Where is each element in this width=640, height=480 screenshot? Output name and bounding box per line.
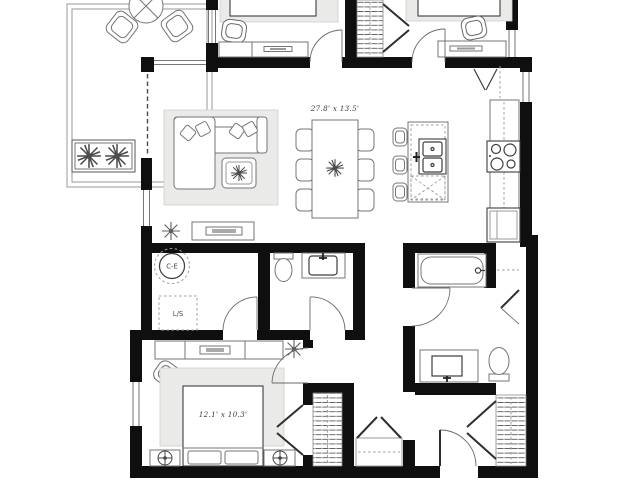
- pantry-bifold-door: [474, 66, 500, 98]
- wall: [342, 393, 354, 466]
- dresser: [155, 341, 185, 359]
- nightstand: [264, 450, 295, 466]
- dining-chair: [356, 129, 374, 151]
- coffee-table: [222, 158, 256, 188]
- bottom-wall: [130, 466, 440, 478]
- refrigerator: [487, 208, 520, 242]
- water-heater-symbol: C-E: [155, 249, 190, 284]
- bifold-door-leaf: [357, 417, 401, 438]
- wall: [303, 383, 313, 405]
- wall: [218, 57, 310, 68]
- plant-icon: [105, 144, 129, 168]
- door-arc: [310, 297, 345, 330]
- wall: [342, 57, 383, 68]
- wall: [345, 0, 357, 57]
- planter-box: [72, 140, 135, 172]
- bed: [230, 0, 316, 16]
- bathroom-1: [274, 253, 345, 330]
- dining-chair: [296, 189, 314, 211]
- closet-door-leaf: [383, 4, 409, 52]
- toilet: [489, 348, 509, 382]
- door-arc: [310, 30, 342, 62]
- floor-plan-svg: 27.8' x 13.5': [0, 0, 640, 480]
- floor-plan-image: 27.8' x 13.5': [0, 0, 640, 480]
- wall: [141, 226, 152, 330]
- lamp-icon: [158, 451, 172, 465]
- balcony-chair: [159, 8, 195, 44]
- door-arc: [501, 308, 519, 324]
- pillow: [225, 451, 258, 464]
- wall: [526, 235, 538, 478]
- dining-chair: [296, 129, 314, 151]
- dining-area: 27.8' x 13.5': [296, 104, 374, 218]
- kitchen-island: [408, 122, 448, 202]
- nightstand: [150, 450, 180, 466]
- wall: [206, 43, 218, 72]
- tv-dresser: [185, 341, 245, 359]
- wall: [130, 330, 223, 340]
- entry-closet: [467, 395, 526, 466]
- entry: [440, 395, 526, 466]
- toilet: [274, 253, 293, 282]
- closet-bedrooms: [357, 0, 409, 57]
- dim-label-living-dining: 27.8' x 13.5': [310, 104, 359, 113]
- wall: [258, 253, 270, 330]
- wall: [141, 158, 152, 190]
- bar-stool: [393, 128, 407, 146]
- master-bedroom: 12.1' x 10.3': [150, 340, 308, 466]
- door-arc: [412, 288, 450, 326]
- dresser: [245, 341, 283, 359]
- bottom-wall: [478, 466, 538, 478]
- ceiling-fan-icon: [162, 222, 180, 240]
- door-arc: [223, 297, 257, 330]
- window: [130, 382, 142, 426]
- wall: [130, 426, 142, 478]
- bar-stool: [393, 156, 407, 174]
- window: [509, 30, 515, 57]
- closet-hanging-rod: [496, 395, 526, 466]
- wall: [303, 340, 313, 348]
- cooktop: [487, 141, 520, 172]
- wall: [403, 243, 415, 288]
- lamp-icon: [273, 451, 287, 465]
- chair: [221, 18, 248, 43]
- bedroom-2: [219, 0, 342, 62]
- wall: [415, 383, 496, 395]
- vanity-sink: [302, 253, 345, 278]
- dresser: [219, 42, 252, 57]
- window: [520, 72, 532, 102]
- wall: [445, 57, 506, 68]
- utility-room: C-E L/S: [155, 249, 258, 331]
- hall-pass-door: [497, 270, 519, 324]
- wall: [383, 57, 412, 68]
- living-room: [162, 110, 278, 240]
- bedroom-1: [406, 0, 512, 62]
- bed: 12.1' x 10.3': [183, 386, 263, 466]
- hall-closet: [356, 417, 402, 466]
- desk-item: [457, 48, 475, 50]
- closet-door-leaf: [467, 401, 496, 459]
- door-leaf: [501, 290, 519, 308]
- dim-label-master-bedroom: 12.1' x 10.3': [199, 410, 247, 419]
- wall: [345, 330, 353, 340]
- plant-icon: [77, 144, 101, 168]
- wall: [303, 455, 313, 466]
- window: [141, 190, 152, 226]
- desk-item: [270, 48, 286, 50]
- vanity-sink: [420, 350, 478, 382]
- bar-stool: [393, 183, 407, 201]
- wall: [141, 57, 154, 72]
- plant-icon: [326, 159, 344, 177]
- tv-console: [192, 222, 254, 240]
- wall: [257, 330, 310, 340]
- wall: [206, 0, 218, 10]
- bed: [418, 0, 500, 16]
- washer-dryer-label: L/S: [173, 310, 183, 318]
- wall: [141, 243, 353, 253]
- pillow: [188, 451, 221, 464]
- dining-chair: [356, 189, 374, 211]
- wall: [403, 326, 415, 392]
- bathtub: [418, 254, 486, 287]
- plant-icon: [231, 165, 247, 181]
- wall: [313, 383, 354, 393]
- washer-dryer-symbol: L/S: [159, 296, 197, 330]
- window: [154, 57, 206, 68]
- wall: [415, 243, 484, 253]
- dining-chair: [356, 159, 374, 181]
- dining-chair: [296, 159, 314, 181]
- wall: [353, 243, 365, 340]
- water-heater-label: C-E: [166, 263, 178, 271]
- wall: [403, 440, 415, 466]
